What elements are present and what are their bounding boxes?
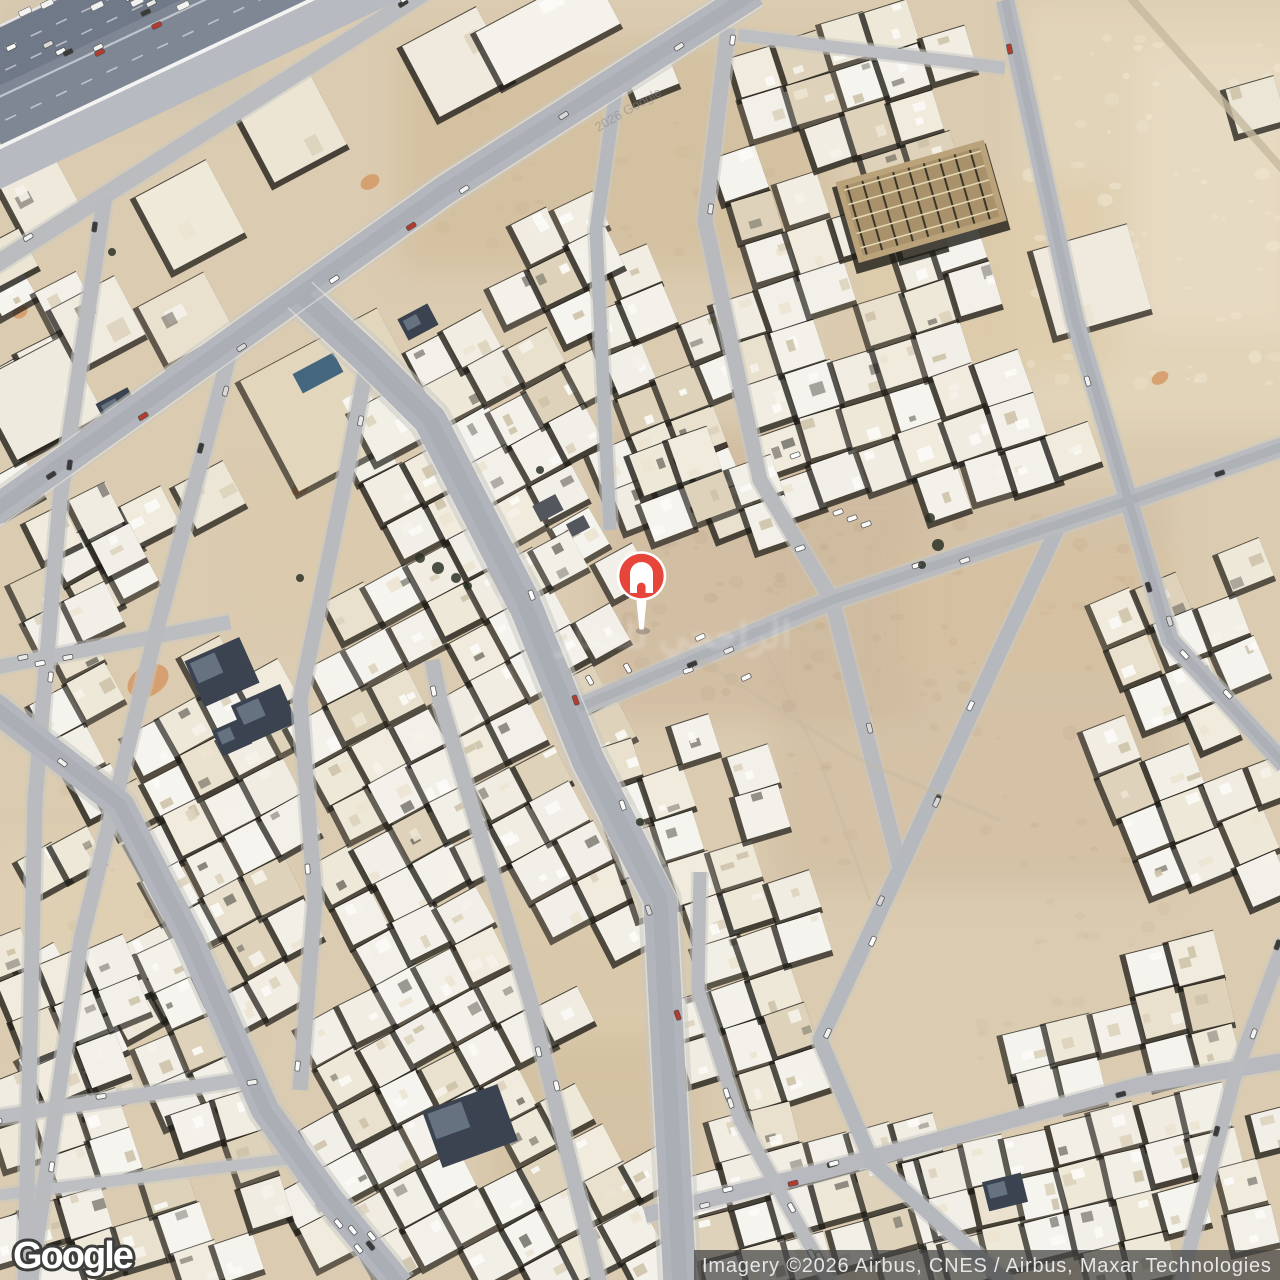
svg-text:Imagery ©2026 Airbus, CNES / A: Imagery ©2026 Airbus, CNES / Airbus, Max… (702, 1255, 1272, 1277)
svg-text:الراجحي للعقار: الراجحي للعقار (553, 615, 792, 658)
svg-text:Google: Google (13, 1235, 133, 1277)
